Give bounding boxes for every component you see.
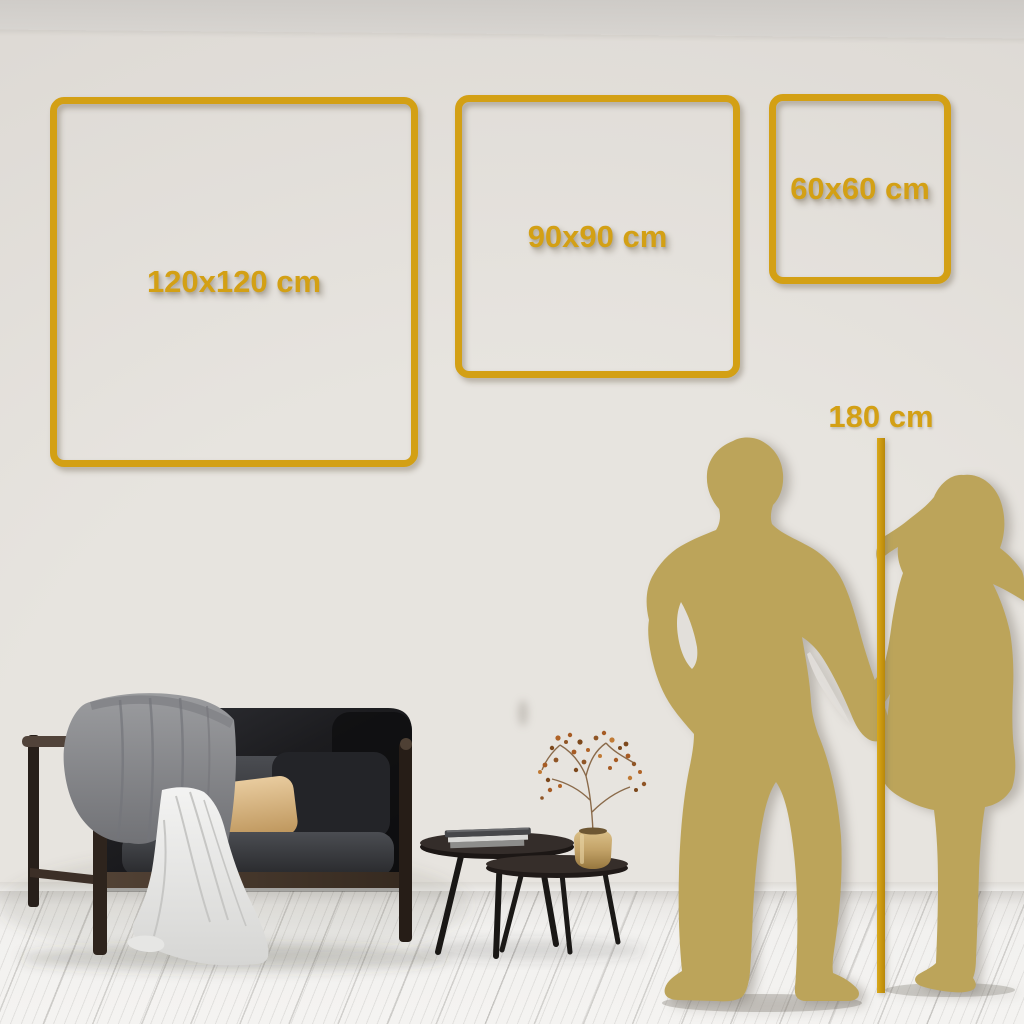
- couple-silhouette: [630, 430, 1024, 1024]
- size-label-120x120: 120x120 cm: [147, 264, 321, 300]
- sofa-wood-peg-right: [400, 738, 412, 750]
- brass-vase: [574, 830, 612, 869]
- size-label-60x60: 60x60 cm: [790, 171, 930, 207]
- size-frame-60x60: 60x60 cm: [769, 94, 951, 284]
- height-ruler-line: [877, 438, 885, 993]
- height-ruler-label: 180 cm: [806, 399, 956, 435]
- books-stack: [445, 827, 532, 848]
- size-label-90x90: 90x90 cm: [528, 219, 668, 255]
- sofa-front-right-leg: [399, 742, 412, 942]
- sofa-rear-leg: [28, 735, 39, 907]
- size-frame-120x120: 120x120 cm: [50, 97, 418, 467]
- size-guide-scene: 120x120 cm 90x90 cm 60x60 cm: [0, 0, 1024, 1024]
- table-legs-low: [502, 868, 618, 952]
- sofa-front-rail: [100, 872, 412, 888]
- branch-stems: [542, 743, 634, 832]
- man-silhouette: [647, 437, 889, 1001]
- size-frame-90x90: 90x90 cm: [455, 95, 740, 378]
- furniture-illustration: [0, 650, 720, 1024]
